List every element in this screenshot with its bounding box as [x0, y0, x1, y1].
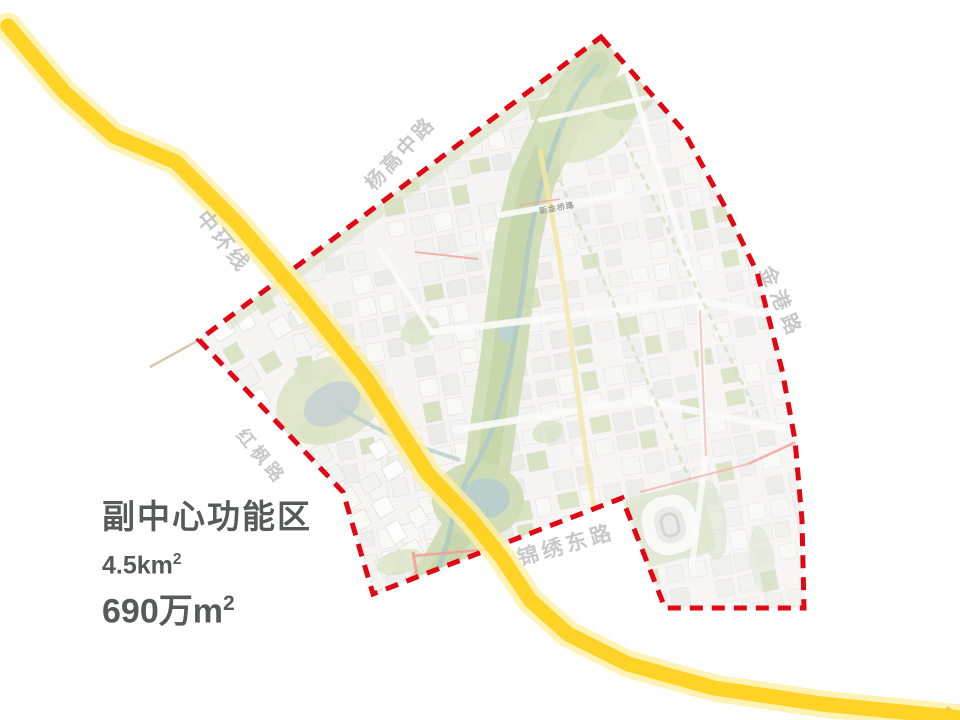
area-total-value: 690万m — [102, 592, 223, 630]
road-stub — [150, 340, 199, 367]
master-plan-figure: 中环线 杨高中路 金港路 红枫路 锦绣东路 新金桥路 副中心功能区 4.5km2… — [0, 0, 960, 720]
district-name-label: 副中心功能区 — [102, 499, 312, 535]
area-km2-superscript: 2 — [173, 551, 182, 568]
area-total-label: 690万m2 — [102, 592, 235, 631]
area-km2-label: 4.5km2 — [102, 551, 182, 580]
area-total-superscript: 2 — [223, 592, 235, 615]
area-km2-value: 4.5km — [102, 551, 173, 579]
